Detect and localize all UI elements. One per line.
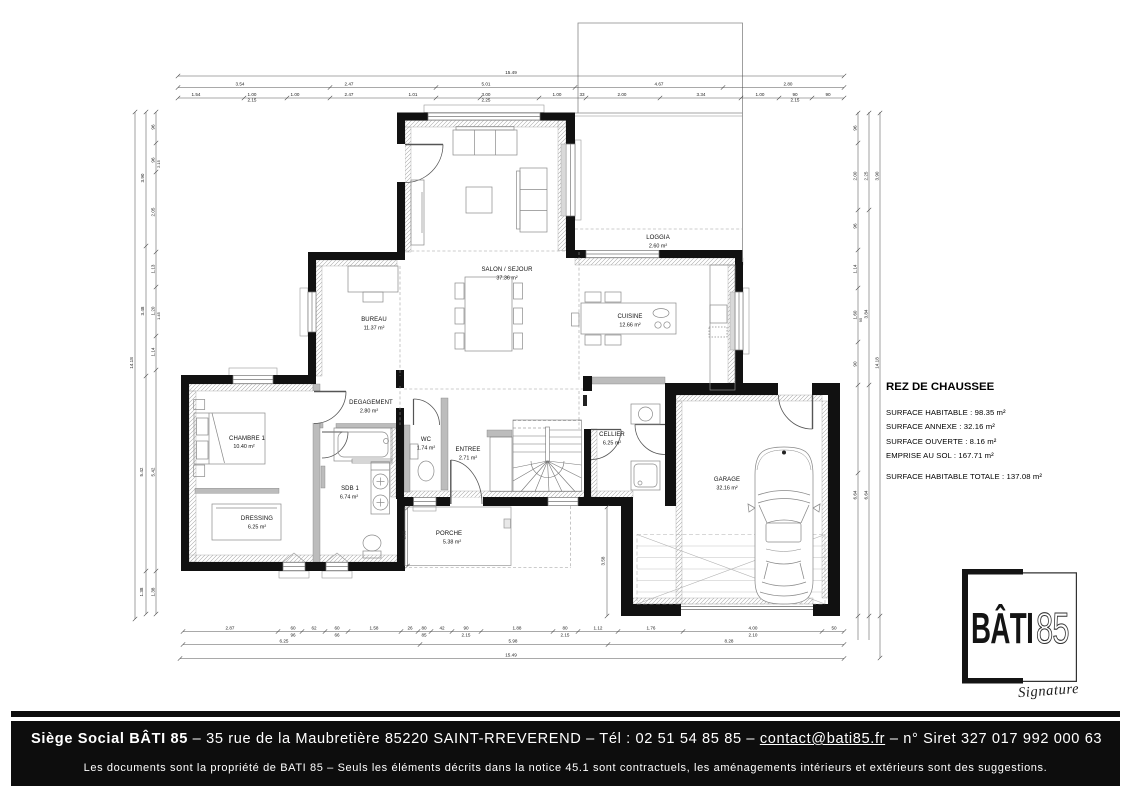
svg-text:4.00: 4.00	[749, 626, 758, 631]
svg-text:BUREAU: BUREAU	[361, 317, 387, 323]
svg-text:1.86: 1.86	[402, 530, 407, 539]
svg-text:SALON / SEJOUR: SALON / SEJOUR	[481, 267, 533, 273]
svg-text:3.48: 3.48	[140, 306, 145, 315]
svg-text:6.74 m²: 6.74 m²	[340, 495, 358, 501]
svg-text:1.60: 1.60	[853, 310, 858, 319]
svg-text:42: 42	[439, 626, 445, 631]
svg-text:66: 66	[334, 633, 340, 638]
svg-text:3.00: 3.00	[482, 92, 491, 97]
svg-text:14.18: 14.18	[129, 357, 134, 369]
svg-text:CELLIER: CELLIER	[599, 432, 625, 438]
svg-text:6.64: 6.64	[853, 490, 858, 499]
svg-text:DRESSING: DRESSING	[241, 516, 273, 522]
svg-text:96: 96	[853, 223, 858, 229]
svg-text:80: 80	[421, 626, 427, 631]
svg-text:60: 60	[334, 626, 340, 631]
svg-text:6.25 m²: 6.25 m²	[248, 525, 266, 531]
svg-text:1.54: 1.54	[192, 92, 201, 97]
svg-text:2.15: 2.15	[791, 98, 800, 103]
svg-text:95: 95	[858, 317, 863, 322]
svg-text:37.36 m²: 37.36 m²	[496, 276, 517, 282]
svg-text:3.84: 3.84	[864, 309, 869, 318]
svg-text:6.25 m²: 6.25 m²	[603, 441, 621, 447]
svg-text:2.15: 2.15	[462, 633, 471, 638]
svg-text:26: 26	[407, 626, 413, 631]
svg-text:90: 90	[825, 92, 831, 97]
svg-text:96: 96	[151, 124, 156, 130]
svg-text:3.58: 3.58	[601, 556, 606, 565]
svg-text:2.47: 2.47	[345, 82, 354, 87]
svg-text:8.28: 8.28	[725, 639, 734, 644]
svg-text:2.25: 2.25	[482, 98, 491, 103]
svg-text:2.47: 2.47	[345, 92, 354, 97]
svg-text:5.42: 5.42	[139, 467, 144, 476]
svg-text:6.25: 6.25	[280, 639, 289, 644]
svg-text:GARAGE: GARAGE	[714, 477, 740, 483]
svg-text:CUISINE: CUISINE	[617, 314, 642, 320]
svg-text:11.37 m²: 11.37 m²	[364, 326, 385, 332]
svg-text:1.88: 1.88	[513, 626, 522, 631]
svg-text:1.14: 1.14	[151, 347, 156, 356]
svg-text:90: 90	[792, 92, 798, 97]
svg-text:WC: WC	[421, 437, 432, 443]
svg-text:2.60 m²: 2.60 m²	[649, 244, 667, 250]
svg-text:LOGGIA: LOGGIA	[646, 235, 670, 241]
svg-text:2.71 m²: 2.71 m²	[459, 456, 477, 462]
svg-text:1.76: 1.76	[647, 626, 656, 631]
svg-text:1.00: 1.00	[553, 92, 562, 97]
svg-text:2.15: 2.15	[248, 98, 257, 103]
svg-text:1.00: 1.00	[291, 92, 300, 97]
svg-text:6.64: 6.64	[864, 490, 869, 499]
svg-text:12.66 m²: 12.66 m²	[619, 323, 640, 329]
svg-text:1.14: 1.14	[853, 264, 858, 273]
svg-text:1.45: 1.45	[156, 311, 161, 320]
svg-text:1.58: 1.58	[370, 626, 379, 631]
svg-text:DEGAGEMENT: DEGAGEMENT	[349, 400, 393, 406]
svg-text:2.00: 2.00	[618, 92, 627, 97]
svg-text:32.16 m²: 32.16 m²	[716, 486, 737, 492]
svg-text:14.18: 14.18	[875, 357, 880, 369]
svg-text:2.00: 2.00	[853, 171, 858, 180]
svg-text:5.98: 5.98	[509, 639, 518, 644]
svg-text:2.05: 2.05	[151, 207, 156, 216]
svg-text:5.01: 5.01	[482, 82, 491, 87]
svg-text:80: 80	[562, 626, 568, 631]
svg-text:2.25: 2.25	[864, 171, 869, 180]
svg-text:1.20: 1.20	[151, 306, 156, 315]
svg-text:2.10: 2.10	[749, 633, 758, 638]
svg-text:1.00: 1.00	[248, 92, 257, 97]
svg-text:96: 96	[151, 157, 156, 163]
svg-text:50: 50	[831, 626, 837, 631]
svg-text:1.00: 1.00	[756, 92, 765, 97]
svg-text:1.12: 1.12	[594, 626, 603, 631]
svg-text:5.42: 5.42	[151, 467, 156, 476]
svg-text:CHAMBRE 1: CHAMBRE 1	[229, 436, 265, 442]
svg-text:60: 60	[290, 626, 296, 631]
svg-text:2.80 m²: 2.80 m²	[360, 409, 378, 415]
svg-text:62: 62	[311, 626, 317, 631]
svg-text:85: 85	[421, 633, 427, 638]
svg-text:1.01: 1.01	[409, 92, 418, 97]
svg-text:2.87: 2.87	[226, 626, 235, 631]
svg-text:1.74 m²: 1.74 m²	[417, 446, 435, 452]
svg-text:PORCHE: PORCHE	[436, 531, 462, 537]
svg-text:5.38 m²: 5.38 m²	[443, 540, 461, 546]
svg-text:1.38: 1.38	[139, 587, 144, 596]
svg-text:96: 96	[290, 633, 296, 638]
svg-text:3.90: 3.90	[140, 173, 145, 182]
svg-text:2.80: 2.80	[784, 82, 793, 87]
svg-text:15.49: 15.49	[505, 653, 517, 658]
svg-text:3.54: 3.54	[236, 82, 245, 87]
svg-text:3.90: 3.90	[875, 171, 880, 180]
svg-text:90: 90	[463, 626, 469, 631]
svg-text:10.40 m²: 10.40 m²	[233, 444, 254, 450]
svg-text:15.49: 15.49	[505, 70, 517, 75]
svg-text:4.67: 4.67	[655, 82, 664, 87]
svg-text:3.34: 3.34	[697, 92, 706, 97]
svg-text:96: 96	[853, 125, 858, 131]
svg-text:ENTREE: ENTREE	[456, 447, 481, 453]
svg-text:2.15: 2.15	[561, 633, 570, 638]
svg-text:1.13: 1.13	[151, 264, 156, 273]
svg-text:SDB 1: SDB 1	[341, 486, 359, 492]
svg-text:1.38: 1.38	[151, 587, 156, 596]
svg-text:33: 33	[579, 92, 585, 97]
svg-text:90: 90	[853, 361, 858, 367]
svg-text:2.15: 2.15	[156, 159, 161, 168]
